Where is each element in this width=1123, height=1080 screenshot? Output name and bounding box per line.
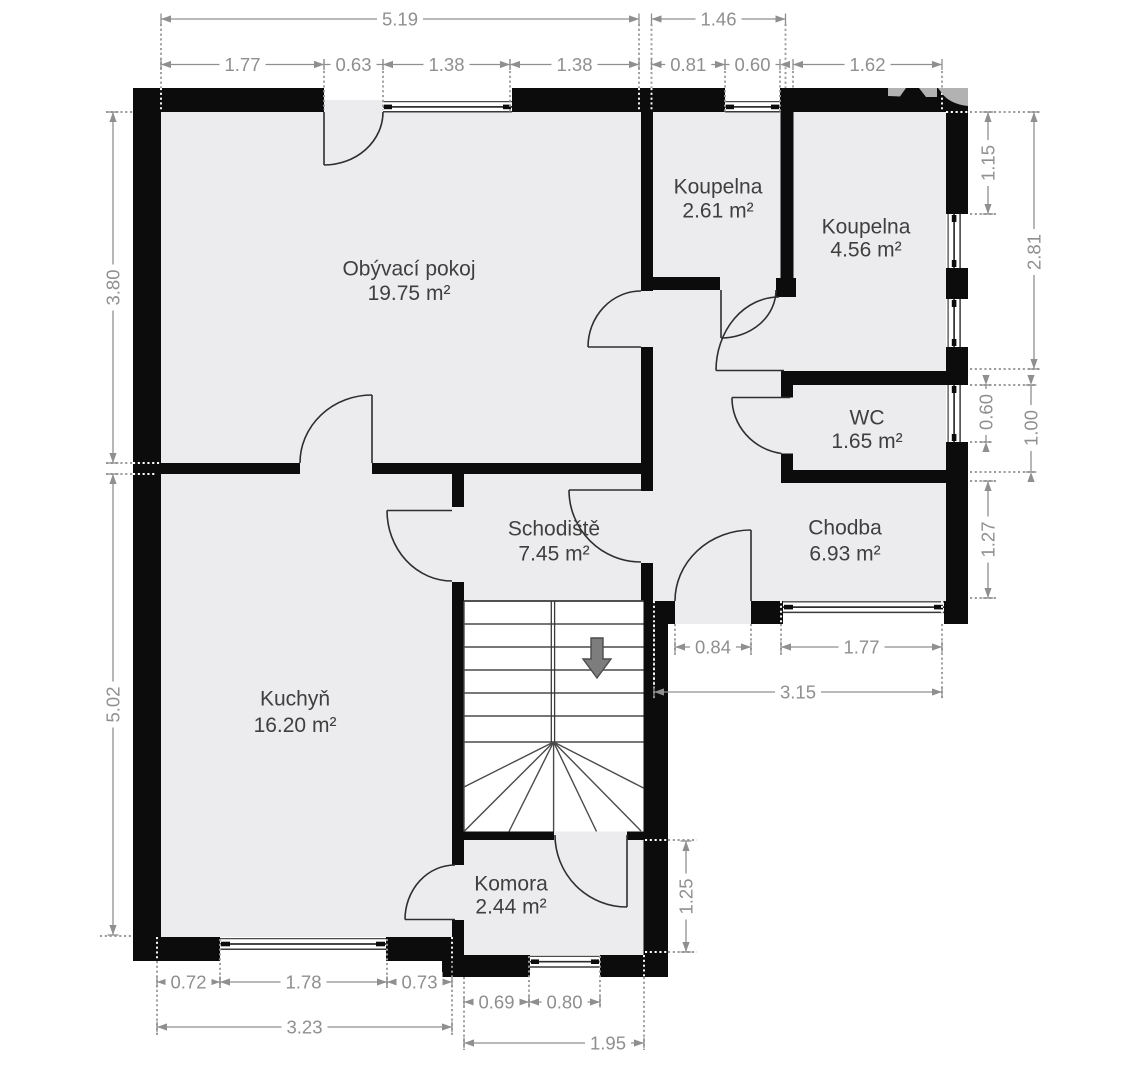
- svg-text:6.93 m²: 6.93 m²: [809, 542, 880, 565]
- svg-text:4.56 m²: 4.56 m²: [830, 238, 901, 261]
- svg-text:5.19: 5.19: [382, 8, 418, 29]
- svg-text:1.38: 1.38: [556, 54, 592, 75]
- svg-text:1.78: 1.78: [285, 971, 321, 992]
- svg-text:3.80: 3.80: [102, 269, 123, 305]
- svg-text:3.15: 3.15: [780, 681, 816, 702]
- svg-text:7.45 m²: 7.45 m²: [518, 542, 589, 565]
- svg-text:2.44 m²: 2.44 m²: [475, 895, 546, 918]
- svg-text:3.23: 3.23: [286, 1016, 322, 1037]
- svg-text:0.60: 0.60: [734, 54, 770, 75]
- svg-text:Chodba: Chodba: [808, 516, 882, 539]
- svg-text:1.25: 1.25: [675, 878, 696, 914]
- svg-text:WC: WC: [850, 406, 885, 429]
- svg-text:0.84: 0.84: [695, 636, 731, 657]
- svg-text:0.81: 0.81: [670, 54, 706, 75]
- svg-text:Schodiště: Schodiště: [508, 517, 600, 540]
- svg-text:1.77: 1.77: [224, 54, 260, 75]
- svg-text:Kuchyň: Kuchyň: [260, 687, 330, 710]
- svg-text:1.77: 1.77: [843, 636, 879, 657]
- svg-text:Koupelna: Koupelna: [822, 215, 911, 238]
- svg-text:1.00: 1.00: [1020, 410, 1041, 446]
- svg-text:1.95: 1.95: [590, 1032, 626, 1053]
- svg-text:0.63: 0.63: [335, 54, 371, 75]
- svg-text:5.02: 5.02: [102, 686, 123, 722]
- svg-text:Obývací pokoj: Obývací pokoj: [342, 257, 475, 280]
- svg-text:1.65 m²: 1.65 m²: [831, 430, 902, 453]
- svg-text:1.62: 1.62: [849, 54, 885, 75]
- svg-text:2.81: 2.81: [1023, 234, 1044, 270]
- svg-text:Komora: Komora: [474, 872, 548, 895]
- svg-text:1.15: 1.15: [977, 145, 998, 181]
- svg-text:1.27: 1.27: [977, 521, 998, 557]
- svg-text:19.75 m²: 19.75 m²: [368, 282, 451, 305]
- svg-text:1.38: 1.38: [428, 54, 464, 75]
- svg-text:0.60: 0.60: [975, 394, 996, 430]
- svg-text:1.46: 1.46: [700, 8, 736, 29]
- svg-text:0.80: 0.80: [546, 991, 582, 1012]
- svg-text:0.72: 0.72: [170, 971, 206, 992]
- svg-text:0.69: 0.69: [478, 991, 514, 1012]
- svg-text:0.73: 0.73: [401, 971, 437, 992]
- svg-text:Koupelna: Koupelna: [674, 175, 763, 198]
- svg-text:2.61 m²: 2.61 m²: [682, 199, 753, 222]
- svg-text:16.20 m²: 16.20 m²: [254, 714, 337, 737]
